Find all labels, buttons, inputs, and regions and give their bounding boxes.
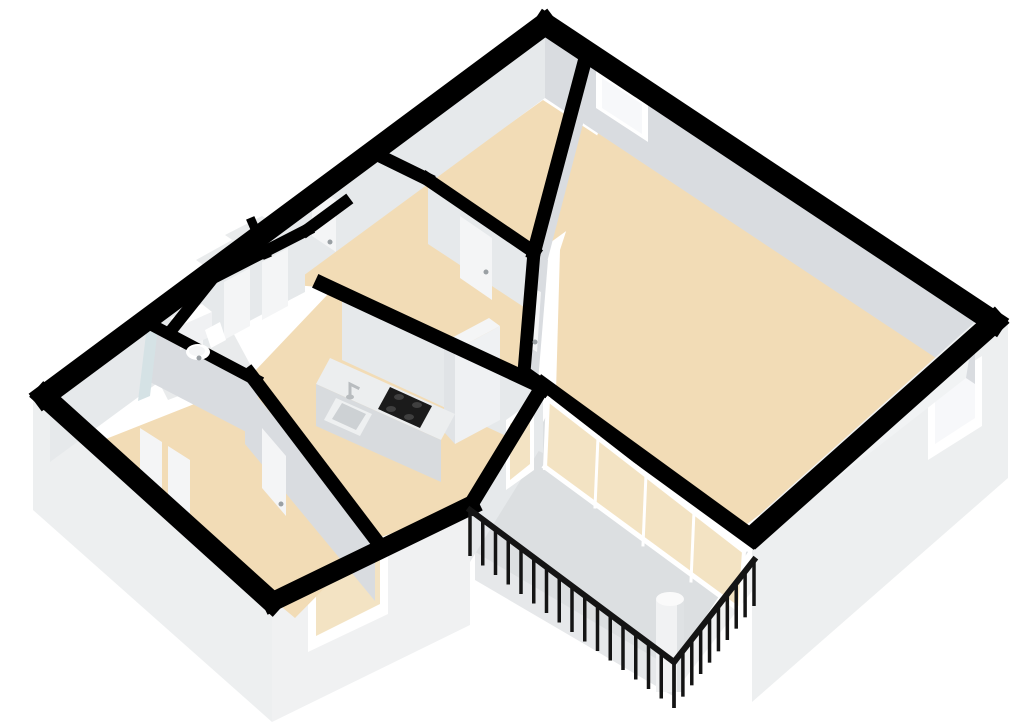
hob-burner-4 bbox=[404, 414, 414, 420]
bath-door-handle bbox=[197, 356, 202, 361]
entry-door-handle bbox=[328, 240, 333, 245]
toilet-seat bbox=[189, 346, 205, 356]
bed2-door-handle bbox=[484, 270, 489, 275]
floorplan-canvas bbox=[0, 0, 1024, 724]
bed1-door-handle bbox=[279, 502, 284, 507]
hob-burner-3 bbox=[386, 406, 396, 412]
floorplan-3d-render bbox=[0, 0, 1024, 724]
kitchen-faucet-base bbox=[346, 395, 354, 400]
hob-burner-2 bbox=[412, 402, 422, 408]
balcony-column-top bbox=[656, 592, 684, 606]
hall-living-door-handle bbox=[533, 340, 538, 345]
hob-burner-1 bbox=[394, 394, 404, 400]
